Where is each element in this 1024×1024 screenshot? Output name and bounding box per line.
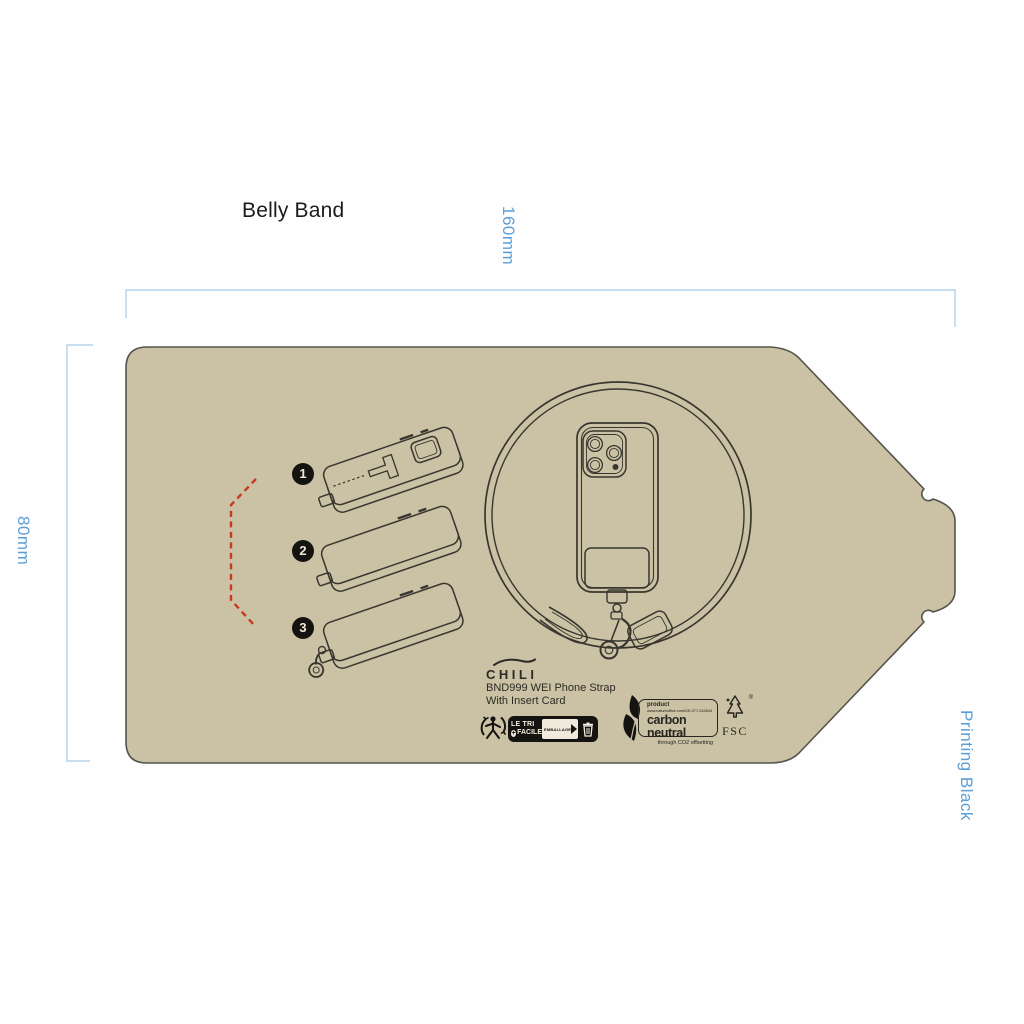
trash-bin-icon [582,722,594,737]
carbon-neutral-badge: product www.natureoffice.com/DE-077-2445… [638,699,718,737]
page-title: Belly Band [242,199,344,223]
le-tri-facile-badge: LE TRI +FACILE EMBALLAGE [508,716,598,742]
step-number-badge: 2 [292,540,314,562]
height-dimension-line [67,345,93,761]
dieline-drawing [0,0,1024,1024]
emballage-label: EMBALLAGE [544,727,571,732]
step-number-badge: 3 [292,617,314,639]
le-tri-label: LE TRI [511,721,542,729]
width-dimension-line [126,290,955,327]
artboard: Belly Band 160mm 80mm Printing Black 1 2… [0,0,1024,1024]
width-dimension-label: 160mm [498,206,518,265]
chili-swoosh-icon [492,657,538,667]
brand-name: CHILI [486,667,556,682]
step-number-badge: 1 [292,463,314,485]
triman-icon [480,713,507,744]
bin-section [578,716,598,742]
plus-circle-icon: + [511,730,516,737]
carbon-subtitle: through CO2 offsetting [647,740,713,746]
brand-logo: CHILI [486,657,556,682]
arrow-right-icon [571,724,577,734]
facile-label: FACILE [517,729,542,737]
le-tri-facile-text: LE TRI +FACILE [508,716,542,742]
facile-row: +FACILE [511,729,542,737]
fsc-tree-icon [724,695,746,720]
carbon-title: carbon neutral [647,714,713,740]
fsc-badge: ® FSC [720,695,750,737]
height-dimension-label: 80mm [13,516,33,565]
printing-note: Printing Black [956,710,976,821]
fsc-label: FSC [720,725,750,737]
emballage-section: EMBALLAGE [542,719,578,739]
registered-mark: ® [749,695,753,701]
